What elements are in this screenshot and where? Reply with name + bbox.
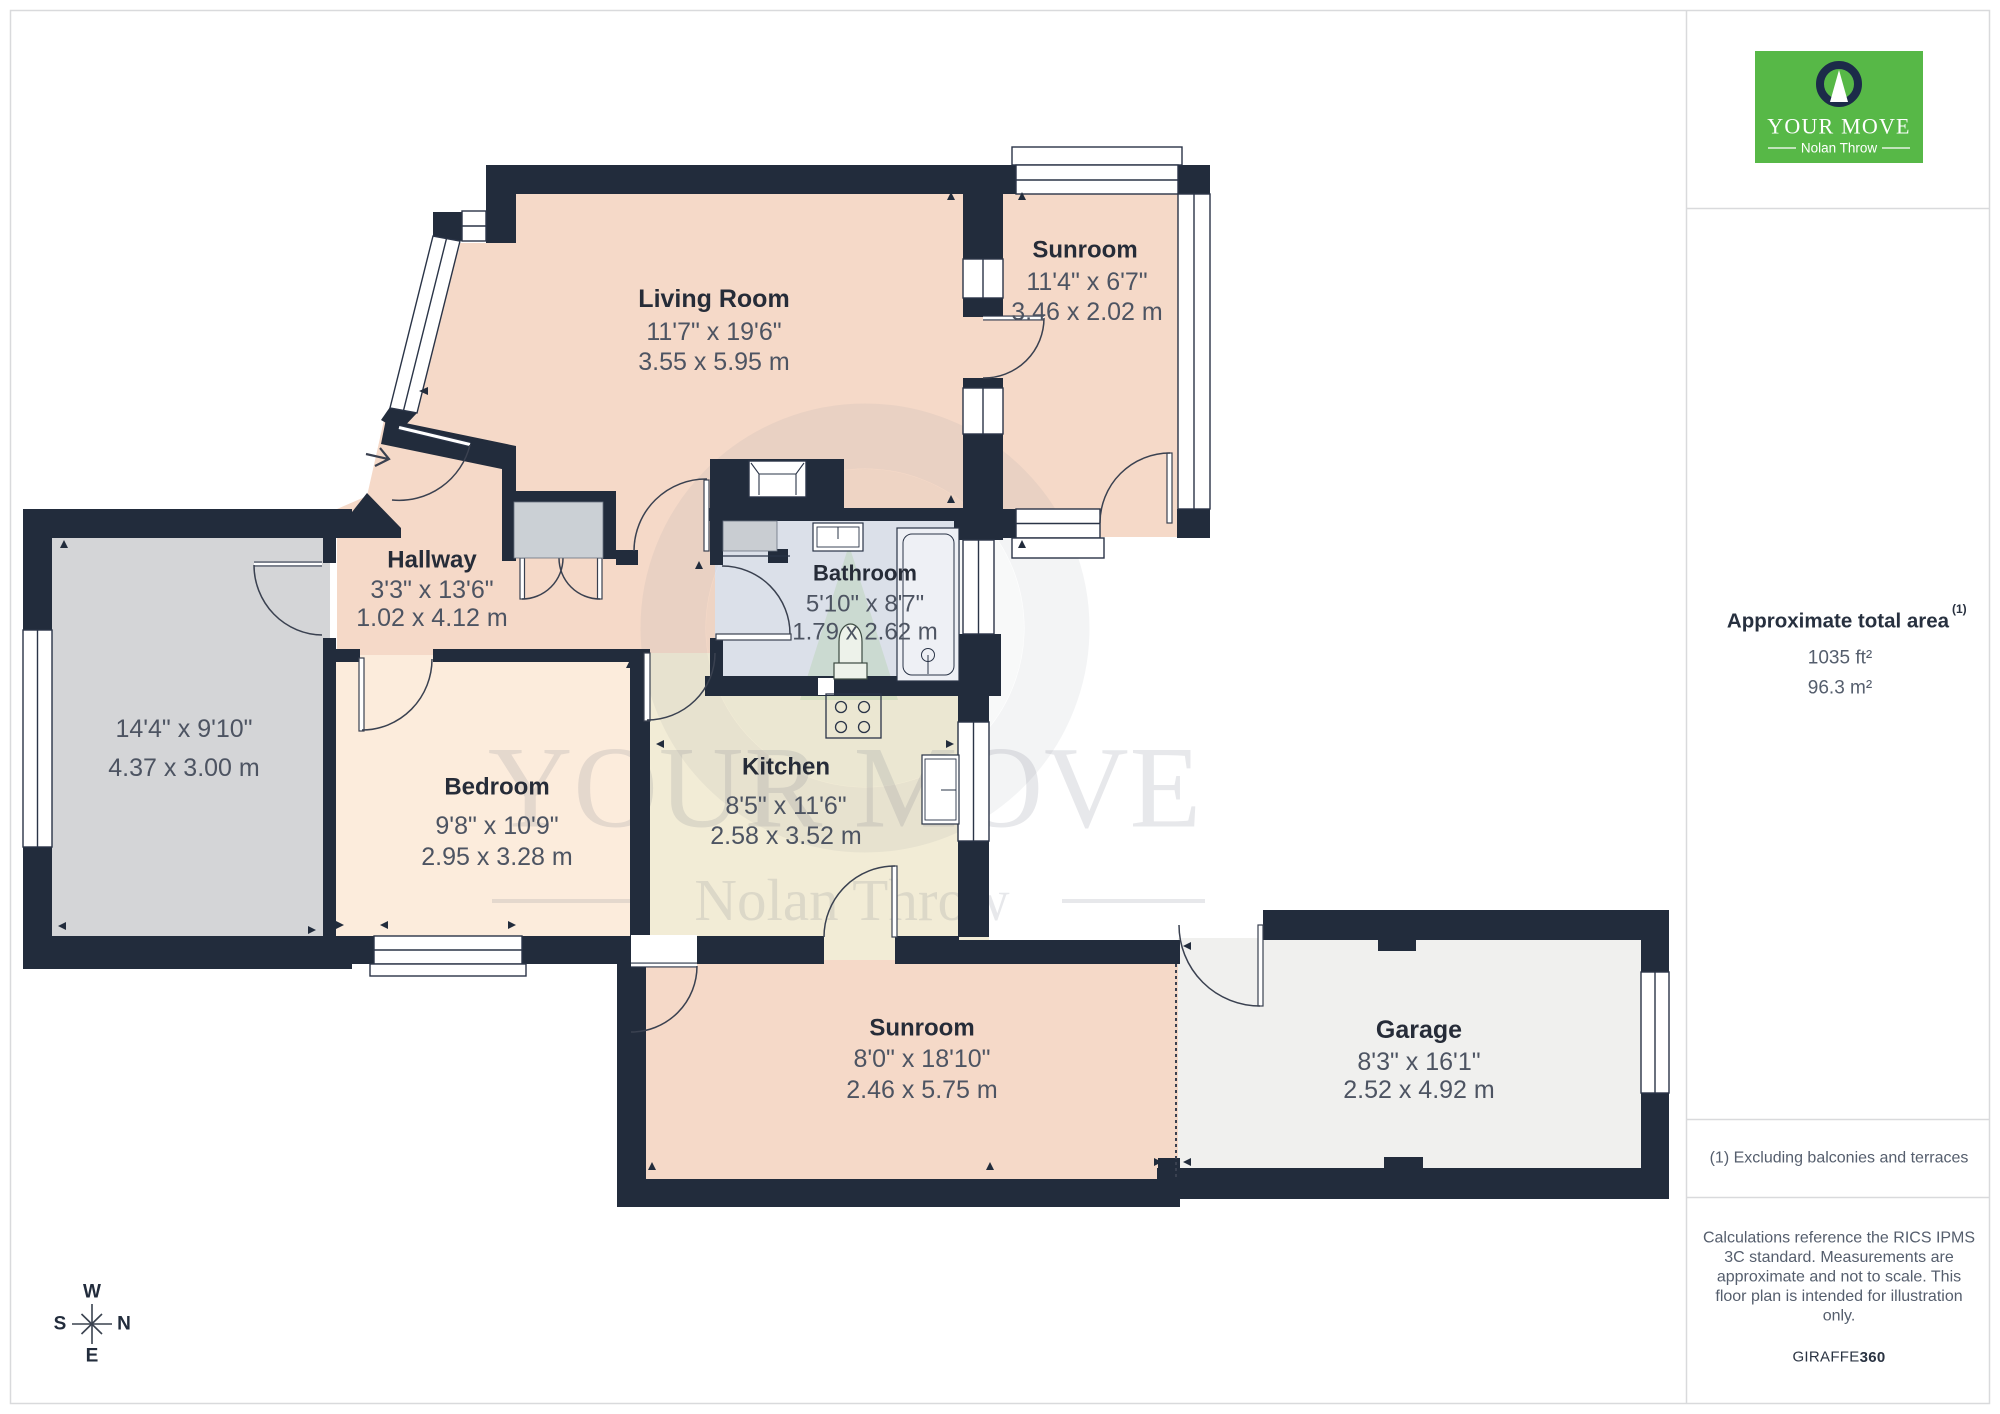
svg-text:4.37 x 3.00 m: 4.37 x 3.00 m [108, 754, 259, 782]
svg-text:W: W [83, 1282, 101, 1303]
svg-text:floor plan is intended for ill: floor plan is intended for illustration [1715, 1288, 1962, 1305]
svg-text:approximate and not to scale.: approximate and not to scale. This [1717, 1269, 1961, 1286]
svg-text:1035 ft²: 1035 ft² [1808, 648, 1872, 669]
svg-text:S: S [54, 1314, 67, 1335]
svg-text:11'7" x 19'6": 11'7" x 19'6" [646, 318, 781, 346]
svg-text:8'5" x 11'6": 8'5" x 11'6" [725, 792, 846, 820]
svg-text:3'3" x 13'6": 3'3" x 13'6" [370, 576, 493, 604]
svg-text:Nolan Throw: Nolan Throw [1801, 141, 1878, 156]
svg-text:1.79 x 2.62 m: 1.79 x 2.62 m [792, 619, 937, 646]
svg-text:14'4" x 9'10": 14'4" x 9'10" [115, 715, 252, 743]
svg-text:N: N [117, 1314, 131, 1335]
svg-text:Calculations reference the RIC: Calculations reference the RICS IPMS [1703, 1230, 1975, 1247]
svg-text:Hallway: Hallway [387, 547, 477, 574]
svg-text:Bedroom: Bedroom [444, 774, 549, 801]
svg-text:5'10" x 8'7": 5'10" x 8'7" [806, 591, 924, 618]
svg-text:3.55 x 5.95 m: 3.55 x 5.95 m [638, 348, 789, 376]
svg-text:Approximate total area: Approximate total area [1727, 610, 1950, 633]
svg-text:9'8" x 10'9": 9'8" x 10'9" [435, 812, 558, 840]
svg-text:11'4" x 6'7": 11'4" x 6'7" [1026, 268, 1147, 296]
svg-text:3C standard. Measurements are: 3C standard. Measurements are [1724, 1249, 1954, 1266]
svg-text:8'0" x 18'10": 8'0" x 18'10" [853, 1045, 990, 1073]
svg-text:8'3" x 16'1": 8'3" x 16'1" [1357, 1048, 1480, 1076]
svg-text:Living Room: Living Room [638, 285, 789, 313]
svg-text:1.02 x 4.12 m: 1.02 x 4.12 m [356, 604, 507, 632]
svg-text:Garage: Garage [1376, 1016, 1462, 1044]
svg-text:2.52 x 4.92 m: 2.52 x 4.92 m [1343, 1076, 1494, 1104]
svg-text:(1) Excluding balconies and te: (1) Excluding balconies and terraces [1710, 1150, 1969, 1167]
svg-text:2.46 x 5.75 m: 2.46 x 5.75 m [846, 1076, 997, 1104]
svg-text:E: E [86, 1346, 99, 1367]
svg-text:(1): (1) [1952, 602, 1967, 616]
svg-text:2.58 x 3.52 m: 2.58 x 3.52 m [710, 822, 861, 850]
svg-text:YOUR MOVE: YOUR MOVE [1767, 114, 1910, 139]
svg-text:Kitchen: Kitchen [742, 754, 830, 781]
svg-text:96.3 m²: 96.3 m² [1808, 678, 1872, 699]
svg-text:Sunroom: Sunroom [1032, 237, 1137, 264]
svg-text:Bathroom: Bathroom [813, 561, 917, 586]
svg-text:only.: only. [1823, 1308, 1856, 1325]
svg-text:Sunroom: Sunroom [869, 1015, 974, 1042]
svg-text:2.95 x 3.28 m: 2.95 x 3.28 m [421, 843, 572, 871]
svg-text:GIRAFFE360: GIRAFFE360 [1792, 1349, 1885, 1366]
svg-text:3.46 x 2.02 m: 3.46 x 2.02 m [1011, 298, 1162, 326]
